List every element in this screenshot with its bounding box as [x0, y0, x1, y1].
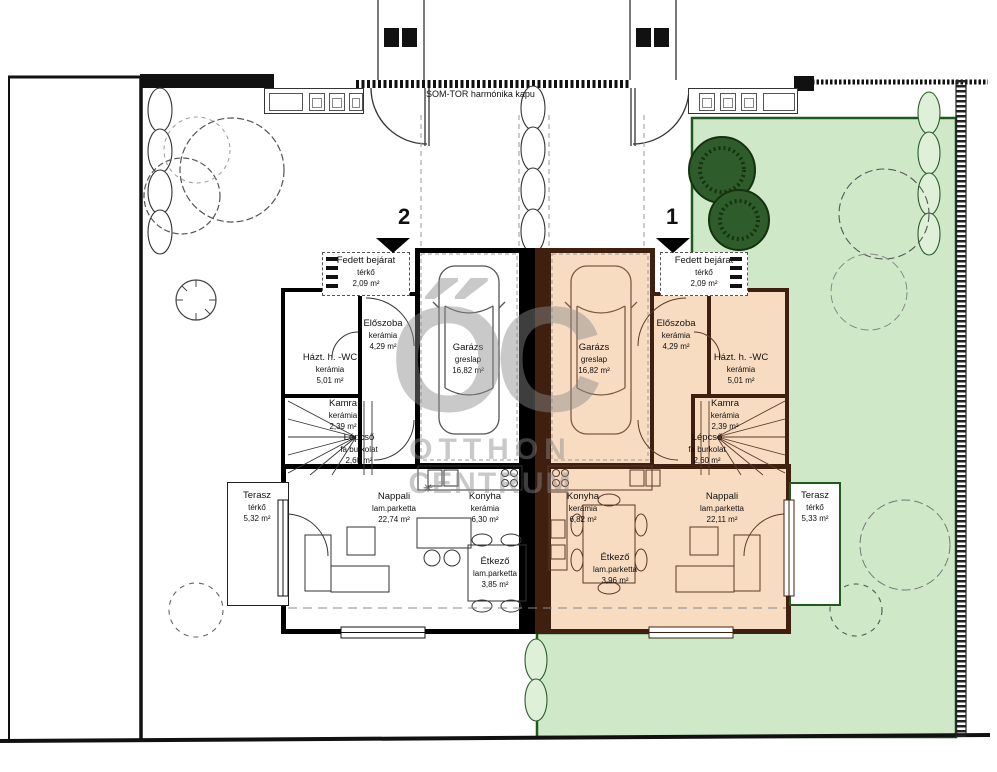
label-terasz-right: Terasztérkő5,33 m² — [790, 490, 840, 524]
unit-marker-1-arrow — [656, 238, 690, 253]
label-eloszoba-left: Előszobakerámia4,29 m² — [352, 318, 414, 352]
label-garazs-left: Garázsgreslap16,82 m² — [432, 342, 504, 376]
sofa-icon — [305, 527, 389, 592]
furniture-drawing: ✳ — [0, 0, 997, 772]
sofa-icon — [676, 527, 760, 592]
label-hazt-wc-left: Házt. h. -WCkerámia5,01 m² — [293, 352, 367, 386]
label-nappali-right: Nappalilam.parketta22,11 m² — [680, 491, 764, 525]
unit-marker-2: 2 — [398, 204, 410, 230]
label-eloszoba-right: Előszobakerámia4,29 m² — [645, 318, 707, 352]
unit-marker-2-arrow — [376, 238, 410, 253]
label-konyha-right: Konyhakerámia6,82 m² — [550, 491, 616, 525]
label-kamra-left: Kamrakerámia2,39 m² — [312, 398, 374, 432]
floor-plan-canvas: ✳ Fedett bejárattérkő2,09 m² Előszobaker… — [0, 0, 997, 772]
label-fedett-bejarat-right: Fedett bejárattérkő2,09 m² — [662, 255, 746, 289]
label-hazt-wc-right: Házt. h. -WCkerámia5,01 m² — [704, 352, 778, 386]
label-lepcso-left: Lépcsőfa burkolat2,60 m² — [326, 432, 392, 466]
unit-marker-1: 1 — [666, 204, 678, 230]
label-etkezo-left: Étkezőlam.parketta3,85 m² — [462, 556, 528, 590]
label-fedett-bejarat-left: Fedett bejárattérkő2,09 m² — [324, 255, 408, 289]
label-kamra-right: Kamrakerámia2,39 m² — [694, 398, 756, 432]
label-nappali-left: Nappalilam.parketta22,74 m² — [352, 491, 436, 525]
label-lepcso-right: Lépcsőfa burkolat2,60 m² — [674, 432, 740, 466]
label-etkezo-right: Étkezőlam.parketta3,96 m² — [580, 552, 650, 586]
label-konyha-left: Konyhakerámia6,30 m² — [452, 491, 518, 525]
label-garazs-right: Garázsgreslap16,82 m² — [558, 342, 630, 376]
label-terasz-left: Terasztérkő5,32 m² — [228, 490, 286, 524]
